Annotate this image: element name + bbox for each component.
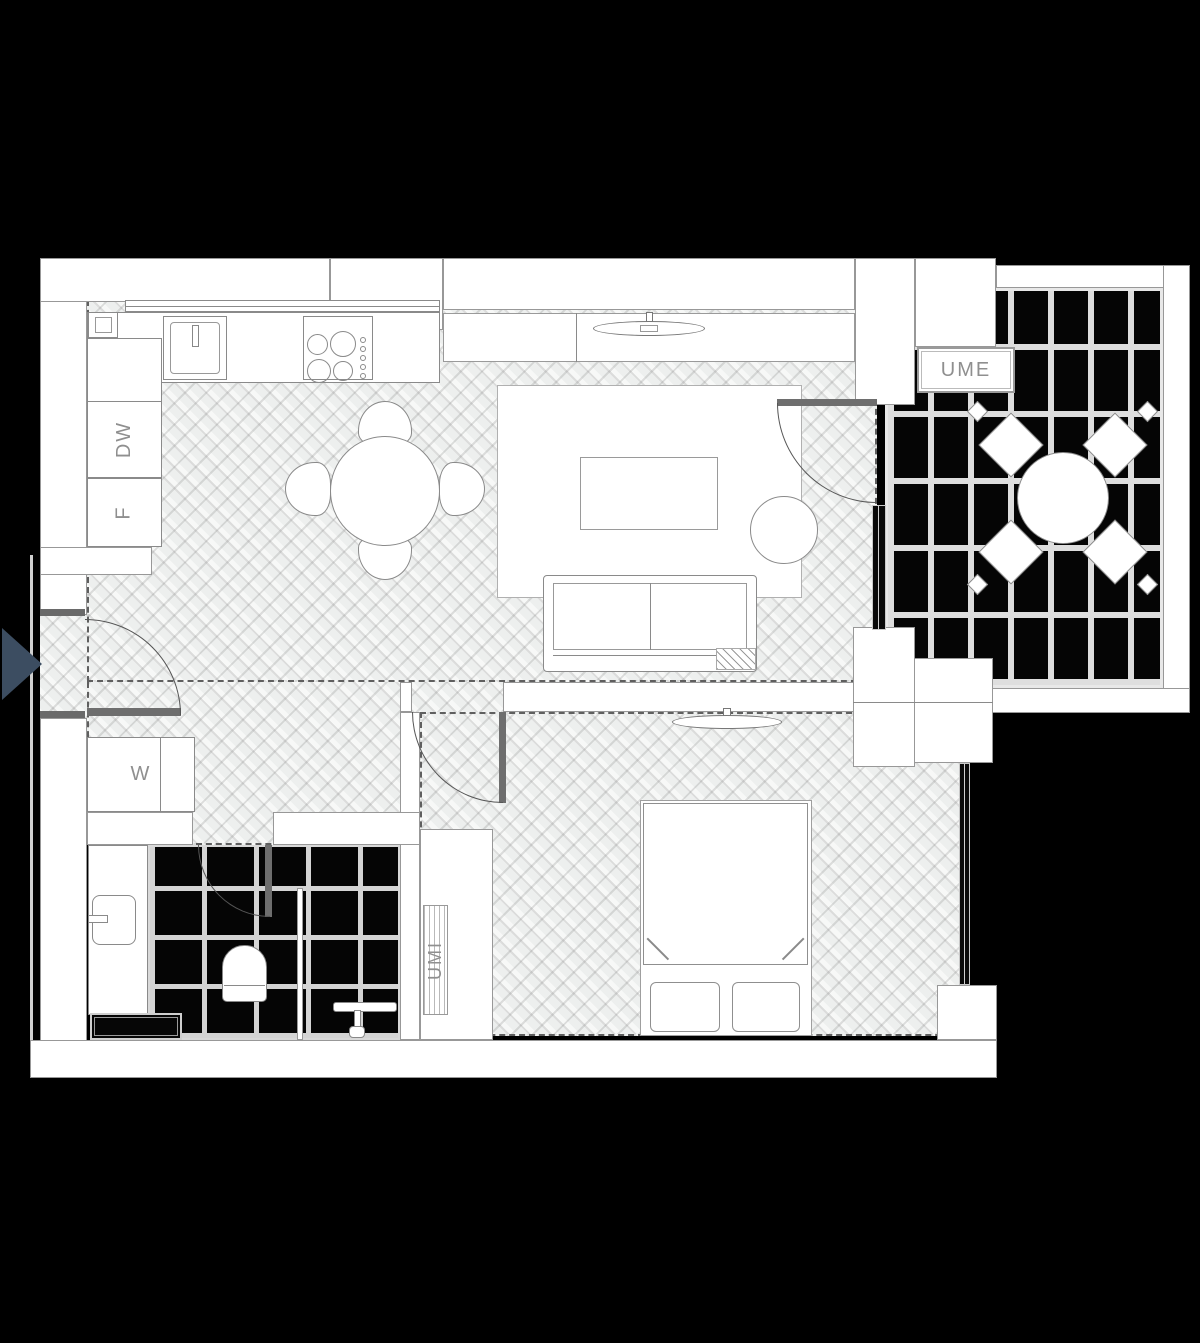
hob-knob-2 bbox=[360, 346, 366, 352]
hob-burner-4 bbox=[333, 361, 353, 381]
dishwasher-label: DW bbox=[113, 421, 136, 458]
wall-top-living bbox=[443, 258, 855, 310]
entry-jamb-top bbox=[40, 609, 85, 616]
sofa-cushion-divider bbox=[650, 583, 651, 650]
wall-top-kitchen bbox=[40, 258, 330, 302]
wall-cabinet-inner bbox=[95, 317, 112, 333]
kitchen-counter-left bbox=[87, 338, 162, 402]
hob-burner-1 bbox=[307, 334, 328, 355]
shower-partition bbox=[297, 888, 303, 1040]
washer-closet-divider bbox=[160, 737, 161, 812]
bed-pillow-right bbox=[732, 982, 800, 1032]
living-tv-stand bbox=[646, 312, 653, 322]
entry-arrow bbox=[2, 628, 42, 700]
kitchen-faucet bbox=[192, 325, 199, 347]
wall-corner-inner-line bbox=[853, 702, 993, 703]
wall-step-balcony bbox=[855, 258, 915, 405]
wall-left-step bbox=[40, 547, 152, 575]
wall-corner-column-a bbox=[853, 627, 915, 767]
wall-divider-right bbox=[503, 682, 885, 712]
media-console-divider bbox=[576, 313, 577, 362]
hob-knob-3 bbox=[360, 355, 366, 361]
wall-bathroom-top-left bbox=[87, 812, 193, 845]
dishwasher-box: DW bbox=[87, 401, 162, 478]
dining-table bbox=[330, 436, 440, 546]
bed-pillow-left bbox=[650, 982, 720, 1032]
wall-bottom-right-step bbox=[937, 985, 997, 1040]
wall-balcony-top bbox=[996, 265, 1190, 288]
bed-duvet bbox=[643, 803, 808, 965]
floor-bedroom-doorway bbox=[412, 682, 503, 712]
wardrobe-unit-label: UMI bbox=[425, 941, 446, 980]
coffee-table bbox=[580, 457, 718, 530]
floor-plan: DW F UME W bbox=[0, 0, 1200, 1343]
toilet bbox=[222, 945, 267, 1002]
bath-mat-dark bbox=[90, 1013, 182, 1040]
shower-head bbox=[349, 1026, 365, 1038]
washer-label: W bbox=[131, 763, 152, 786]
wall-divider-left bbox=[400, 682, 412, 712]
sofa-throw-blanket bbox=[716, 648, 756, 670]
wall-balcony-right bbox=[1163, 265, 1190, 713]
bedroom-window bbox=[959, 763, 970, 985]
living-tv-center bbox=[640, 325, 658, 332]
wall-left-lower bbox=[40, 718, 87, 1078]
balcony-unit-box: UME bbox=[917, 347, 1015, 393]
washer-closet: W bbox=[87, 737, 195, 812]
wall-bath-bedroom bbox=[400, 712, 420, 1040]
hob-knob-1 bbox=[360, 337, 366, 343]
living-room-window bbox=[872, 505, 886, 630]
wall-bottom bbox=[30, 1040, 997, 1078]
wall-corner-column-b bbox=[914, 658, 993, 763]
balcony-unit-label: UME bbox=[941, 359, 991, 382]
bedroom-tv-icon bbox=[672, 715, 782, 729]
bathroom-faucet bbox=[88, 915, 108, 923]
toilet-seat-line bbox=[224, 985, 265, 986]
wall-bathroom-top-right bbox=[273, 812, 420, 845]
accent-chair bbox=[750, 496, 818, 564]
wardrobe-unit: UMI bbox=[423, 905, 448, 1015]
kitchen-window bbox=[125, 300, 440, 312]
fridge-box: F bbox=[87, 478, 162, 547]
hob-burner-3 bbox=[307, 359, 331, 383]
floor-entry-nook bbox=[40, 615, 87, 718]
shower-bench bbox=[333, 1002, 397, 1012]
hob-burner-2 bbox=[330, 331, 356, 357]
fridge-label: F bbox=[113, 505, 136, 519]
hob-knob-5 bbox=[360, 373, 366, 379]
balcony-table bbox=[1017, 452, 1109, 544]
entry-jamb-bottom bbox=[40, 711, 85, 718]
wall-top-right bbox=[915, 258, 996, 347]
hob-knob-4 bbox=[360, 364, 366, 370]
